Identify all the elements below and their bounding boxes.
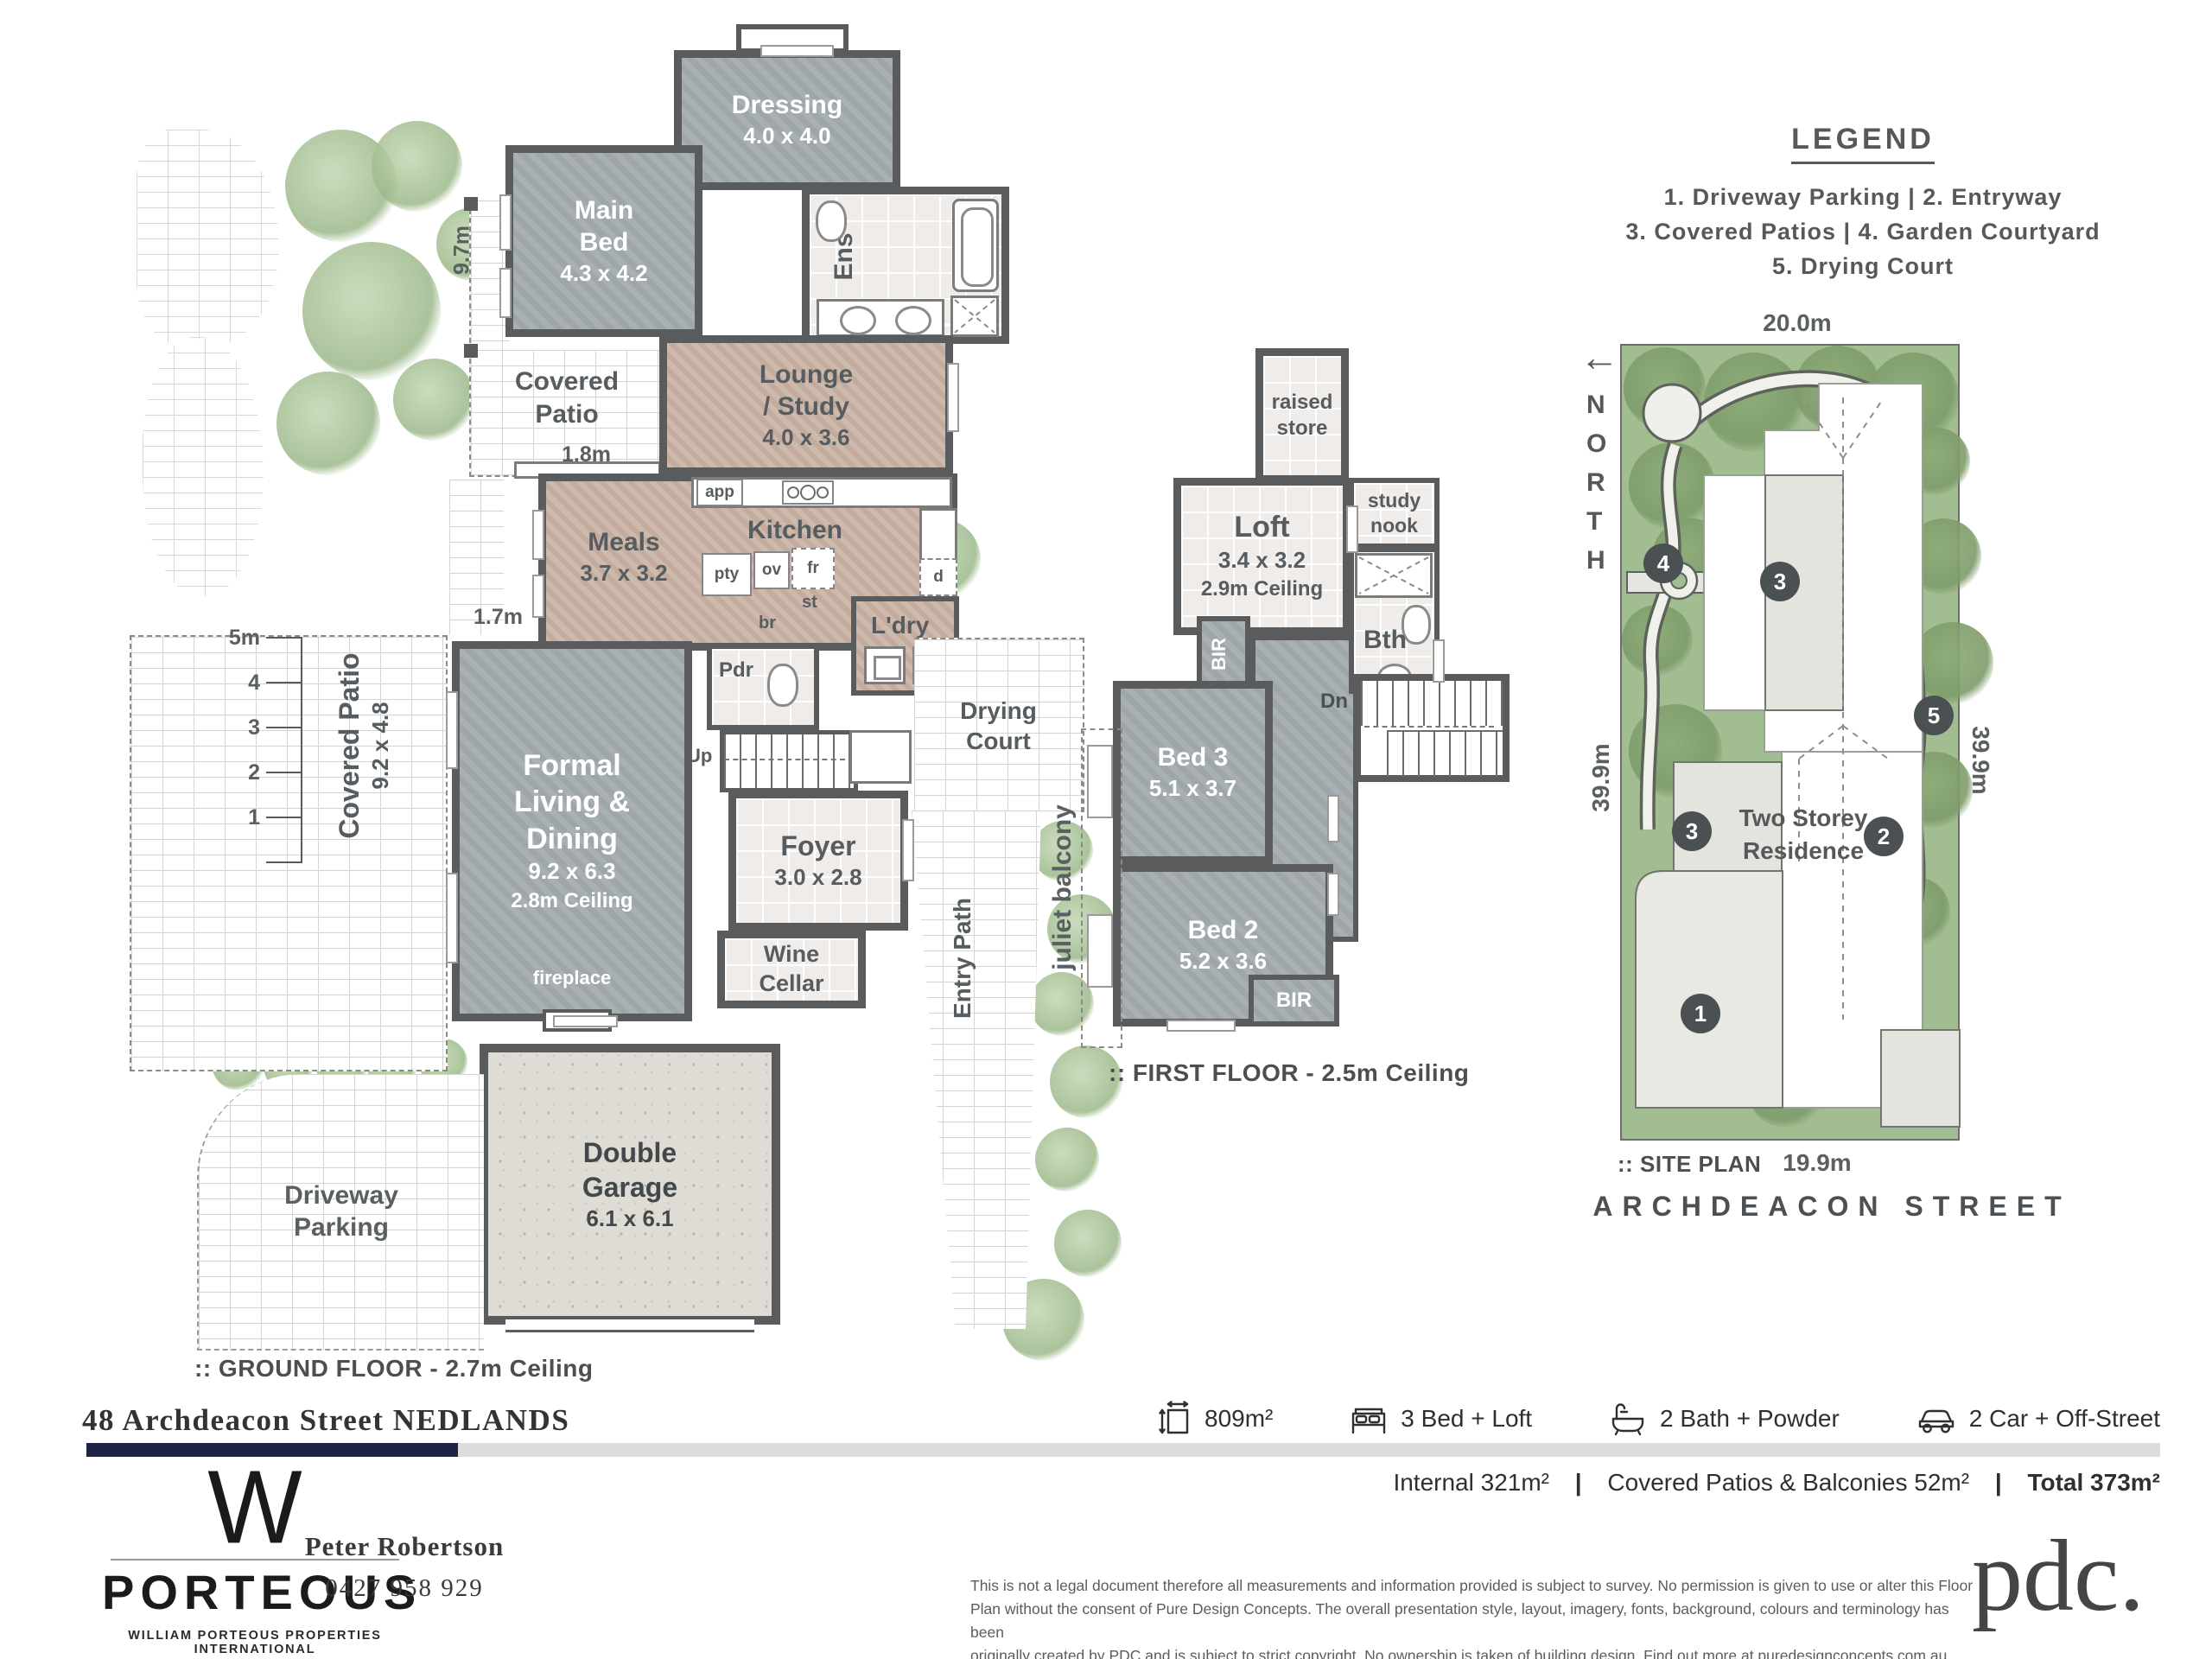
agent-name: Peter Robertson: [301, 1531, 508, 1562]
divider-gray: [458, 1443, 2160, 1457]
stat-beds: 3 Bed + Loft: [1349, 1402, 1532, 1436]
disclaimer: This is not a legal document therefore a…: [970, 1574, 1981, 1659]
address-title: 48 Archdeacon Street NEDLANDS: [82, 1403, 569, 1438]
pdc-logo: pdc.: [1972, 1517, 2145, 1635]
stat-cars: 2 Car + Off-Street: [1916, 1403, 2160, 1434]
car-icon: [1916, 1403, 1957, 1434]
disclaimer-line-3: originally created by PDC and is subject…: [970, 1644, 1981, 1659]
logo-tagline: WILLIAM PORTEOUS PROPERTIES INTERNATIONA…: [102, 1629, 408, 1656]
disclaimer-line-2: Plan without the consent of Pure Design …: [970, 1598, 1981, 1644]
bath-icon: [1608, 1401, 1648, 1437]
bed-icon: [1349, 1402, 1389, 1436]
total-area: Total 373m²: [2027, 1469, 2160, 1496]
area-icon: [1158, 1401, 1192, 1437]
stat-area: 809m²: [1158, 1401, 1273, 1437]
stats-row: 809m² 3 Bed + Loft 2 Bath + Powder 2 Car…: [1158, 1400, 2160, 1438]
internal-area: Internal 321m²: [1393, 1469, 1549, 1496]
stat-baths: 2 Bath + Powder: [1608, 1401, 1840, 1437]
agent-phone: 0427 958 929: [301, 1574, 508, 1603]
floorplan-page: Covered Patio 1.8m 9.7m Dressing 4.0 x 4…: [0, 0, 2212, 1659]
agent-card: Peter Robertson 0427 958 929: [301, 1531, 508, 1603]
patios-area: Covered Patios & Balconies 52m²: [1607, 1469, 1969, 1496]
area-totals: Internal 321m² | Covered Patios & Balcon…: [1037, 1469, 2160, 1497]
footer: 48 Archdeacon Street NEDLANDS 809m² 3 Be…: [0, 0, 2212, 1659]
disclaimer-line-1: This is not a legal document therefore a…: [970, 1574, 1981, 1598]
